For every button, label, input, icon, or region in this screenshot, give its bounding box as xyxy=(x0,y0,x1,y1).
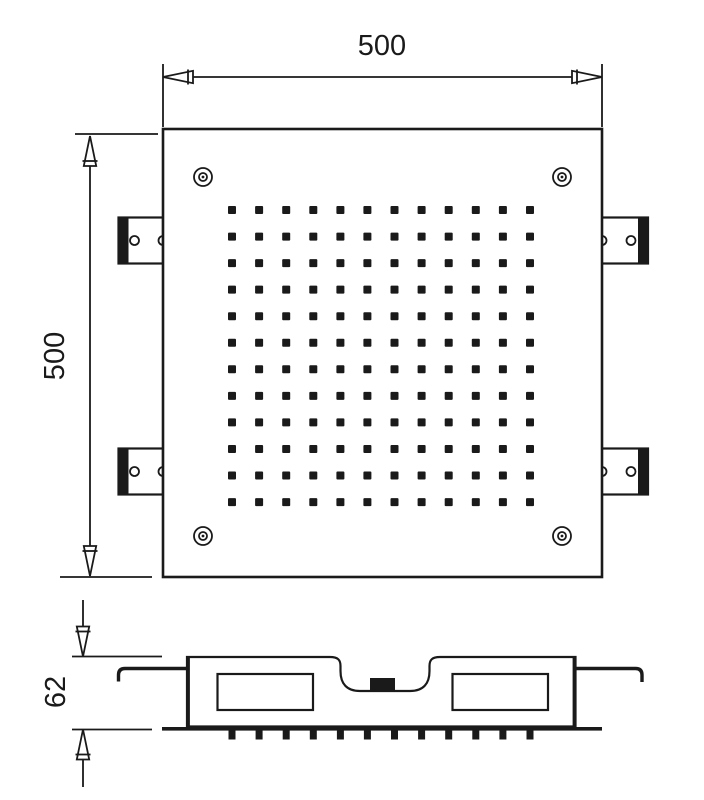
nozzle-dot xyxy=(336,472,344,480)
nozzle-dot xyxy=(418,365,426,373)
nozzle-dot xyxy=(499,233,507,241)
nozzle-dot xyxy=(499,365,507,373)
nozzle-dot xyxy=(445,498,453,506)
nozzle-dot xyxy=(309,286,317,294)
nozzle-dot xyxy=(418,498,426,506)
corner-screw xyxy=(553,168,571,186)
nozzle-dot xyxy=(445,286,453,294)
nozzle-dot xyxy=(282,259,290,267)
nozzle-dot xyxy=(526,286,534,294)
nozzle-dot xyxy=(499,339,507,347)
nozzle-dot xyxy=(445,206,453,214)
nozzle-dot xyxy=(363,206,371,214)
bracket-clamp-bar xyxy=(638,449,648,495)
nozzle-dot xyxy=(526,365,534,373)
nozzle-dot xyxy=(282,365,290,373)
nozzle-tooth xyxy=(256,731,263,740)
nozzle-dot xyxy=(363,259,371,267)
nozzle-dot xyxy=(499,312,507,320)
nozzle-dot xyxy=(472,339,480,347)
nozzle-tooth xyxy=(499,731,506,740)
nozzle-dot xyxy=(282,206,290,214)
dimension-top-width: 500 xyxy=(163,30,602,127)
nozzle-dot xyxy=(445,259,453,267)
nozzle-dot xyxy=(526,445,534,453)
nozzle-dot xyxy=(255,498,263,506)
nozzle-dot xyxy=(391,445,399,453)
nozzle-dot xyxy=(309,445,317,453)
nozzle-dot xyxy=(282,233,290,241)
dimension-side-depth: 62 xyxy=(40,600,162,787)
bracket-hole xyxy=(627,467,636,476)
nozzle-dot xyxy=(391,365,399,373)
corner-screw xyxy=(553,527,571,545)
nozzle-dot xyxy=(472,392,480,400)
nozzle-dot xyxy=(228,392,236,400)
nozzle-tooth xyxy=(310,731,317,740)
nozzle-dot xyxy=(282,498,290,506)
nozzle-dot xyxy=(391,286,399,294)
nozzle-dot xyxy=(336,418,344,426)
nozzle-dot xyxy=(391,206,399,214)
nozzle-dot xyxy=(363,339,371,347)
nozzle-dot xyxy=(418,312,426,320)
shower-panel-face xyxy=(163,129,602,577)
nozzle-dot xyxy=(418,392,426,400)
nozzle-dot xyxy=(445,392,453,400)
screw-center xyxy=(561,535,564,538)
nozzle-dot xyxy=(391,259,399,267)
nozzle-dot xyxy=(255,259,263,267)
nozzle-dot xyxy=(336,259,344,267)
nozzle-dot xyxy=(499,392,507,400)
bracket-hole xyxy=(130,467,139,476)
nozzle-dot xyxy=(255,392,263,400)
nozzle-dot xyxy=(228,472,236,480)
nozzle-dot xyxy=(418,206,426,214)
mounting-bracket-right-bottom xyxy=(602,449,649,495)
nozzle-dot xyxy=(391,339,399,347)
nozzle-dot xyxy=(255,233,263,241)
nozzle-dot xyxy=(526,418,534,426)
nozzle-dot xyxy=(526,259,534,267)
nozzle-dot xyxy=(309,259,317,267)
nozzle-dot xyxy=(309,312,317,320)
nozzle-dot xyxy=(526,206,534,214)
nozzle-dot xyxy=(526,392,534,400)
nozzle-dot xyxy=(472,418,480,426)
nozzle-dot xyxy=(418,339,426,347)
side-view xyxy=(119,657,643,740)
nozzle-dot xyxy=(336,498,344,506)
nozzle-dot xyxy=(472,312,480,320)
nozzle-dot xyxy=(282,312,290,320)
nozzle-dot xyxy=(228,259,236,267)
nozzle-dot xyxy=(228,365,236,373)
nozzle-dot xyxy=(526,233,534,241)
nozzle-dot xyxy=(336,392,344,400)
nozzle-dot xyxy=(363,418,371,426)
nozzle-dot xyxy=(526,312,534,320)
nozzle-dot xyxy=(472,472,480,480)
nozzle-dot xyxy=(363,445,371,453)
nozzle-tooth xyxy=(445,731,452,740)
ceiling-flange-left xyxy=(119,669,188,682)
nozzle-dot xyxy=(445,445,453,453)
nozzle-dot xyxy=(336,312,344,320)
nozzle-dot xyxy=(391,392,399,400)
nozzle-dot xyxy=(418,445,426,453)
housing-body xyxy=(187,657,576,727)
nozzle-dot xyxy=(309,206,317,214)
nozzle-dot xyxy=(445,233,453,241)
nozzle-tooth xyxy=(283,731,290,740)
nozzle-dot xyxy=(363,286,371,294)
technical-drawing-page: 500 500 62 xyxy=(0,0,704,800)
nozzle-dot xyxy=(363,365,371,373)
nozzle-tooth xyxy=(337,731,344,740)
dim-label-depth: 62 xyxy=(40,676,72,708)
nozzle-dot xyxy=(391,498,399,506)
nozzle-dot xyxy=(445,418,453,426)
nozzle-tooth xyxy=(229,731,236,740)
mounting-bracket-right-top xyxy=(602,218,649,264)
nozzle-dot xyxy=(418,418,426,426)
nozzle-dot xyxy=(255,339,263,347)
mounting-bracket-left-top xyxy=(119,218,164,264)
nozzle-dot xyxy=(309,498,317,506)
nozzle-dot xyxy=(336,445,344,453)
nozzle-dot xyxy=(309,339,317,347)
nozzle-dot xyxy=(418,286,426,294)
nozzle-dot xyxy=(228,339,236,347)
nozzle-dot xyxy=(499,472,507,480)
nozzle-dot xyxy=(255,472,263,480)
nozzle-dot xyxy=(282,418,290,426)
dimension-left-height: 500 xyxy=(39,134,158,577)
nozzle-dot xyxy=(228,233,236,241)
nozzle-dot xyxy=(526,498,534,506)
nozzle-dot xyxy=(391,312,399,320)
nozzle-dot xyxy=(391,418,399,426)
nozzle-dot xyxy=(363,312,371,320)
nozzle-tooth xyxy=(391,731,398,740)
water-inlet-connector xyxy=(370,678,395,692)
nozzle-dot xyxy=(228,498,236,506)
nozzle-dot xyxy=(282,392,290,400)
nozzle-dot xyxy=(472,498,480,506)
nozzle-dot xyxy=(255,206,263,214)
top-view xyxy=(119,129,649,577)
nozzle-teeth xyxy=(229,731,534,740)
nozzle-dot xyxy=(363,498,371,506)
bracket-clamp-bar xyxy=(119,218,129,264)
nozzle-tooth xyxy=(364,731,371,740)
nozzle-dot xyxy=(391,472,399,480)
nozzle-dot xyxy=(363,392,371,400)
nozzle-dot xyxy=(255,312,263,320)
dim-label-width: 500 xyxy=(358,30,406,62)
ceiling-flange-right xyxy=(576,669,643,683)
nozzle-dot xyxy=(228,418,236,426)
nozzle-dot xyxy=(499,286,507,294)
nozzle-dot xyxy=(255,286,263,294)
nozzle-dot xyxy=(472,233,480,241)
screw-center xyxy=(561,176,564,179)
nozzle-dot xyxy=(472,286,480,294)
dim-label-height: 500 xyxy=(39,332,71,380)
nozzle-dot xyxy=(228,286,236,294)
nozzle-dot xyxy=(228,445,236,453)
nozzle-tooth xyxy=(527,731,534,740)
nozzle-dot xyxy=(255,445,263,453)
nozzle-dot xyxy=(228,206,236,214)
nozzle-tooth xyxy=(418,731,425,740)
corner-screw xyxy=(194,168,212,186)
screw-center xyxy=(202,535,205,538)
nozzle-dot xyxy=(336,365,344,373)
nozzle-dot xyxy=(309,418,317,426)
nozzle-dot xyxy=(445,312,453,320)
mounting-bracket-left-bottom xyxy=(119,449,164,495)
nozzle-dot xyxy=(282,339,290,347)
nozzle-dot xyxy=(309,365,317,373)
bracket-clamp-bar xyxy=(119,449,129,495)
nozzle-dot xyxy=(391,233,399,241)
nozzle-dot xyxy=(472,445,480,453)
screw-center xyxy=(202,176,205,179)
nozzle-dot xyxy=(228,312,236,320)
nozzle-dot xyxy=(336,233,344,241)
face-plate xyxy=(162,727,602,731)
nozzle-dot xyxy=(363,233,371,241)
shower-head-technical-drawing: 500 500 62 xyxy=(0,0,704,800)
nozzle-dot xyxy=(282,472,290,480)
nozzle-dot xyxy=(445,365,453,373)
nozzle-dot xyxy=(526,472,534,480)
nozzle-dot xyxy=(336,206,344,214)
nozzle-dot xyxy=(499,498,507,506)
corner-screw xyxy=(194,527,212,545)
bracket-hole xyxy=(627,236,636,245)
nozzle-dot xyxy=(255,365,263,373)
nozzle-dot xyxy=(309,392,317,400)
nozzle-dot xyxy=(255,418,263,426)
nozzle-dot xyxy=(418,472,426,480)
nozzle-dot xyxy=(336,286,344,294)
nozzle-dot xyxy=(282,445,290,453)
nozzle-tooth xyxy=(472,731,479,740)
bracket-hole xyxy=(130,236,139,245)
nozzle-dot xyxy=(336,339,344,347)
nozzle-dot xyxy=(309,472,317,480)
nozzle-dot xyxy=(472,365,480,373)
nozzle-dot xyxy=(282,286,290,294)
nozzle-dot xyxy=(418,233,426,241)
nozzle-dot xyxy=(472,206,480,214)
nozzle-dot xyxy=(526,339,534,347)
nozzle-dot xyxy=(309,233,317,241)
nozzle-dot xyxy=(499,445,507,453)
nozzle-dot xyxy=(499,418,507,426)
nozzle-dot xyxy=(418,259,426,267)
nozzle-dot xyxy=(499,259,507,267)
nozzle-dot xyxy=(445,339,453,347)
nozzle-dot xyxy=(445,472,453,480)
nozzle-dot xyxy=(472,259,480,267)
bracket-clamp-bar xyxy=(638,218,648,264)
nozzle-dot xyxy=(363,472,371,480)
nozzle-dot xyxy=(499,206,507,214)
